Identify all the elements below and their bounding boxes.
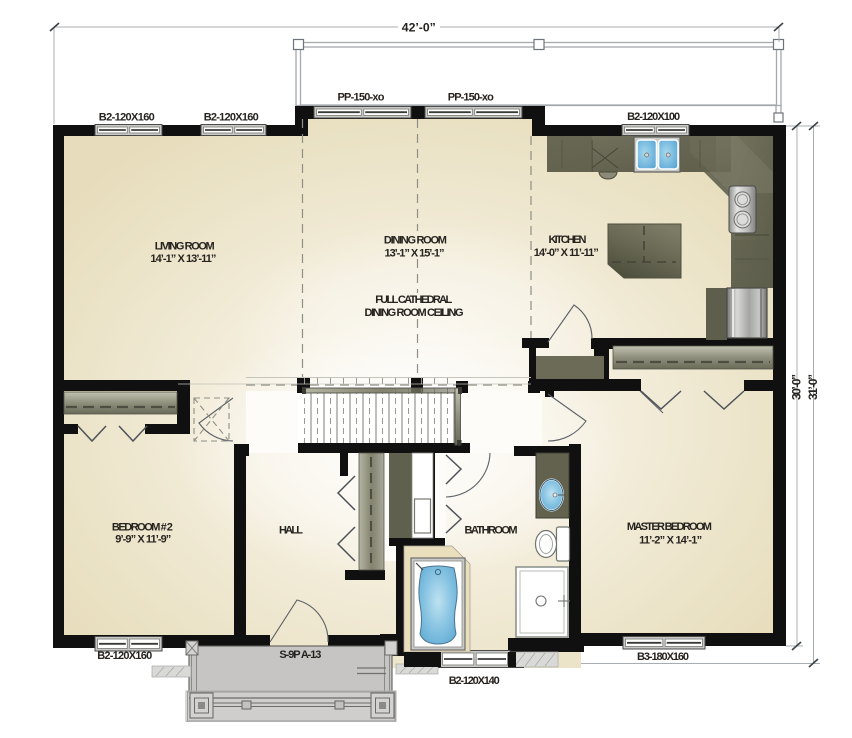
svg-text:B2-120X160: B2-120X160 [204, 112, 259, 124]
svg-text:DINING ROOM: DINING ROOM [384, 235, 447, 247]
svg-text:B2-120X160: B2-120X160 [99, 112, 155, 124]
svg-text:11’-2” X 14’-1”: 11’-2” X 14’-1” [639, 534, 702, 546]
svg-text:DINING ROOM CEILING: DINING ROOM CEILING [365, 307, 464, 319]
svg-text:B2-120X100: B2-120X100 [627, 111, 680, 123]
svg-text:BEDROOM # 2: BEDROOM # 2 [112, 522, 173, 534]
svg-text:B3-180X160: B3-180X160 [637, 651, 689, 663]
svg-text:PP-150-xo: PP-150-xo [448, 92, 494, 104]
svg-text:BATHROOM: BATHROOM [465, 525, 518, 537]
svg-text:HALL: HALL [279, 524, 303, 536]
svg-text:B2-120X140: B2-120X140 [449, 675, 500, 687]
svg-text:31’-0”: 31’-0” [806, 374, 820, 400]
svg-text:14’-0” X 11’-11”: 14’-0” X 11’-11” [534, 247, 599, 259]
svg-text:PP-150-xo: PP-150-xo [338, 92, 385, 104]
svg-text:14’-1” X 13’-11”: 14’-1” X 13’-11” [150, 253, 216, 265]
svg-text:FULL CATHEDRAL: FULL CATHEDRAL [375, 294, 452, 306]
svg-text:13’-1” X 15’-1”: 13’-1” X 15’-1” [385, 248, 445, 260]
svg-text:B2-120X160: B2-120X160 [97, 650, 152, 662]
svg-text:30’-0”: 30’-0” [790, 374, 804, 400]
svg-text:S-9P A-13: S-9P A-13 [279, 649, 321, 661]
svg-text:9’-9” X 11’-9”: 9’-9” X 11’-9” [115, 534, 171, 546]
svg-text:MASTER BEDROOM: MASTER BEDROOM [627, 521, 712, 533]
svg-text:KITCHEN: KITCHEN [549, 234, 587, 246]
svg-text:42’-0”: 42’-0” [402, 21, 436, 35]
svg-text:LIVING ROOM: LIVING ROOM [155, 241, 215, 253]
